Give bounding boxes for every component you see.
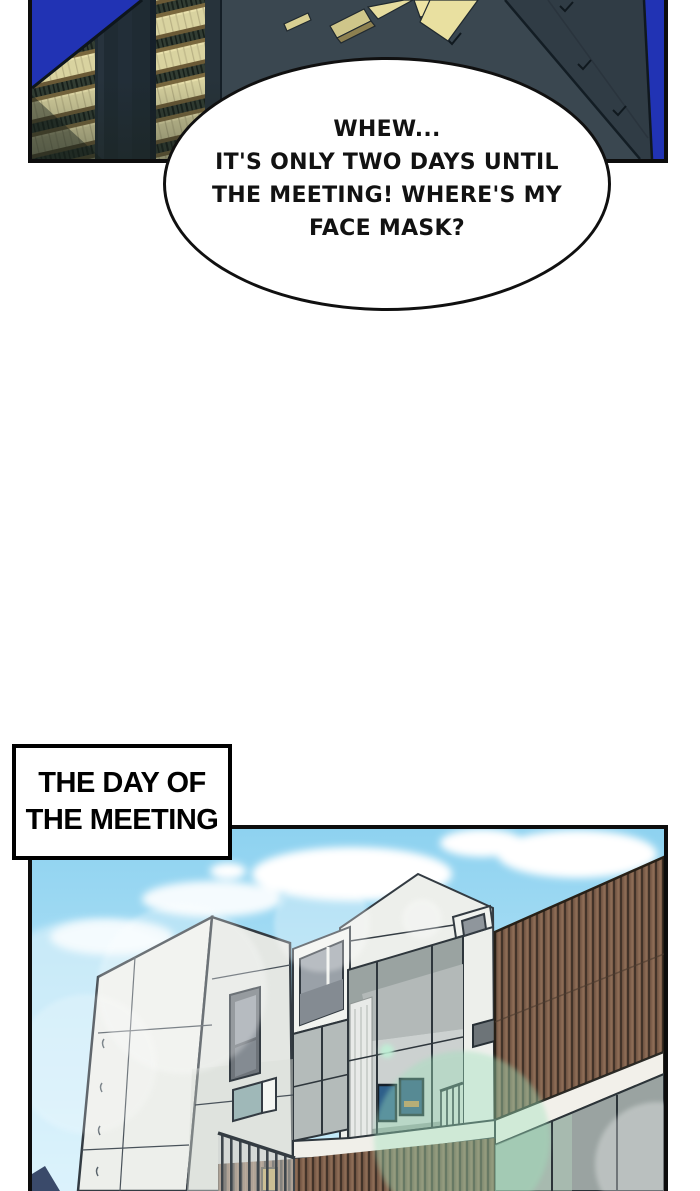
glass-return <box>293 1019 350 1141</box>
panel-day-scene <box>28 825 668 1191</box>
caption-box: THE DAY OF THE MEETING <box>12 744 232 860</box>
speech-line: IT'S ONLY TWO DAYS UNTIL <box>215 146 559 179</box>
speech-bubble: WHEW... IT'S ONLY TWO DAYS UNTIL THE MEE… <box>163 57 611 311</box>
caption-line: THE MEETING <box>26 802 219 839</box>
speech-line: THE MEETING! WHERE'S MY <box>212 179 562 212</box>
comic-page: WHEW... IT'S ONLY TWO DAYS UNTIL THE MEE… <box>0 0 700 1191</box>
caption-line: THE DAY OF <box>38 765 205 802</box>
speech-line: FACE MASK? <box>309 212 465 245</box>
day-scene-art <box>32 829 664 1191</box>
speech-line: WHEW... <box>333 113 440 146</box>
